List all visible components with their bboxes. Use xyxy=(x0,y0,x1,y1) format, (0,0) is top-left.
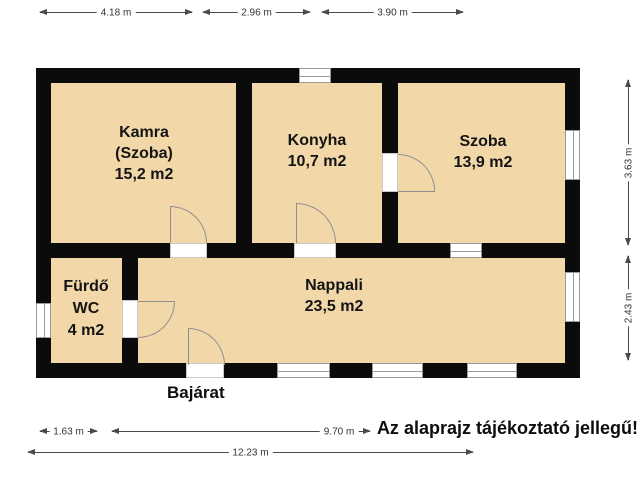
window-szoba-nappali xyxy=(450,243,482,258)
window-nappali-right xyxy=(565,272,580,322)
disclaimer-text: Az alaprajz tájékoztató jellegű! xyxy=(377,418,638,439)
dimension-right-lower-label: 2.43 m xyxy=(624,290,635,327)
dimension-top-szoba-label: 3.90 m xyxy=(373,8,412,19)
label-kamra: Kamra (Szoba) 15,2 m2 xyxy=(115,122,174,185)
window-nappali-bottom-1 xyxy=(277,363,330,378)
label-kamra-line3: 15,2 m2 xyxy=(115,164,174,185)
dimension-bottom-nappali: 9.70 m xyxy=(112,431,370,432)
label-nappali-line2: 23,5 m2 xyxy=(305,296,364,317)
dimension-bottom-nappali-label: 9.70 m xyxy=(320,427,359,438)
dimension-top-kamra-label: 4.18 m xyxy=(97,8,136,19)
label-nappali: Nappali 23,5 m2 xyxy=(305,275,364,317)
label-furdo-line1: Fürdő xyxy=(63,276,108,298)
opening-konyha-szoba-door xyxy=(382,153,398,192)
opening-entrance-door xyxy=(186,363,224,378)
window-szoba-right xyxy=(565,130,580,180)
window-konyha-top xyxy=(299,68,331,83)
window-nappali-bottom-3 xyxy=(467,363,517,378)
label-konyha: Konyha 10,7 m2 xyxy=(288,130,347,172)
label-nappali-line1: Nappali xyxy=(305,275,364,296)
entrance-label: Bajárat xyxy=(167,383,225,403)
label-szoba: Szoba 13,9 m2 xyxy=(454,131,513,173)
label-szoba-line2: 13,9 m2 xyxy=(454,152,513,173)
dimension-top-konyha-label: 2.96 m xyxy=(237,8,276,19)
label-konyha-line2: 10,7 m2 xyxy=(288,151,347,172)
dimension-top-szoba: 3.90 m xyxy=(322,12,463,13)
opening-kamra-door xyxy=(170,243,207,258)
opening-furdo-door xyxy=(122,300,138,338)
floor-plan: 4.18 m 2.96 m 3.90 m 3.63 m 2.43 m 1.63 … xyxy=(0,0,640,480)
dimension-bottom-furdo-label: 1.63 m xyxy=(49,427,88,438)
dimension-bottom-total: 12.23 m xyxy=(28,452,473,453)
label-furdo-line2: WC xyxy=(63,298,108,320)
dimension-right-lower: 2.43 m xyxy=(628,256,629,360)
dimension-bottom-furdo: 1.63 m xyxy=(40,431,97,432)
label-szoba-line1: Szoba xyxy=(454,131,513,152)
window-furdo-left xyxy=(36,303,51,338)
label-kamra-line1: Kamra xyxy=(115,122,174,143)
window-nappali-bottom-2 xyxy=(372,363,423,378)
dimension-right-upper-label: 3.63 m xyxy=(624,144,635,181)
dimension-right-upper: 3.63 m xyxy=(628,80,629,245)
label-furdo: Fürdő WC 4 m2 xyxy=(63,276,108,342)
dimension-top-kamra: 4.18 m xyxy=(40,12,192,13)
label-kamra-line2: (Szoba) xyxy=(115,143,174,164)
dimension-bottom-total-label: 12.23 m xyxy=(228,448,272,459)
label-furdo-line3: 4 m2 xyxy=(63,320,108,342)
label-konyha-line1: Konyha xyxy=(288,130,347,151)
dimension-top-konyha: 2.96 m xyxy=(203,12,310,13)
door-leaf-konyha-szoba xyxy=(398,191,435,192)
opening-konyha-door xyxy=(294,243,336,258)
